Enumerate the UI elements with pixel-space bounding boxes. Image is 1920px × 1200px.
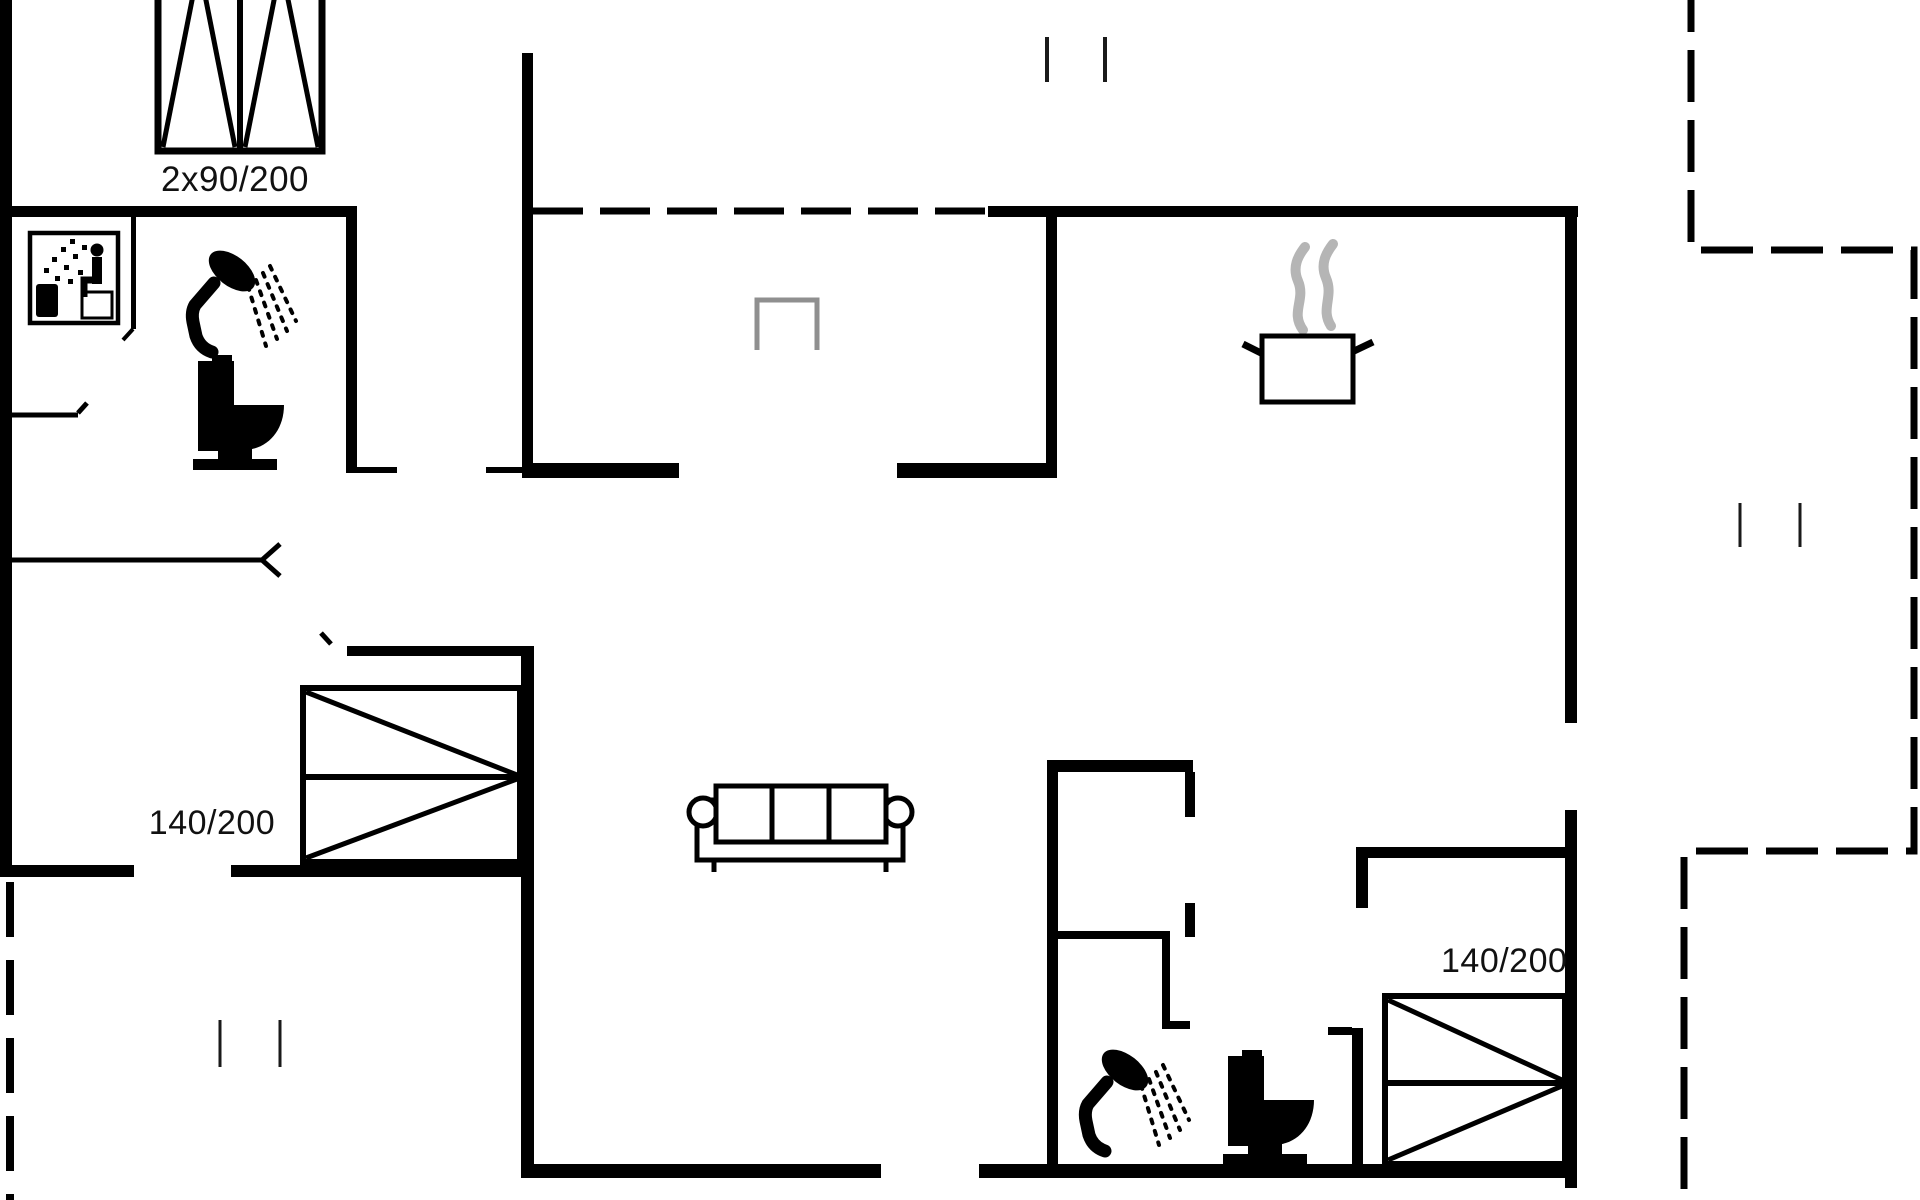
bedroom2-top-wall: [347, 646, 534, 656]
double-bed-2x90-icon: [158, 0, 322, 151]
hall-left-wall: [522, 53, 533, 478]
bedroom2-bottom-wall-left: [0, 865, 134, 877]
right-outer-wall-upper: [1565, 206, 1577, 723]
right-terrace-dashed: [1684, 0, 1914, 1200]
corridor-door-chevron: [262, 544, 280, 576]
steam-wisp: [1296, 247, 1305, 330]
steam-wisp: [1324, 244, 1333, 326]
kitchen-top-outer-wall: [988, 206, 1578, 217]
double-bed-140x200-right-icon: [1385, 996, 1565, 1164]
toilet-icon: [193, 355, 284, 470]
hall-bottom-wall-left: [522, 463, 679, 478]
bathroom2-left-wall: [1047, 760, 1058, 1178]
sofa-icon: [689, 786, 912, 872]
bathroom1-door-stub: [346, 467, 397, 473]
bathroom2-shower-partition: [1057, 931, 1170, 939]
sauna-pictogram-icon: [30, 233, 118, 323]
shower-icon: [1085, 1042, 1189, 1151]
bed-size-label-right: 140/200: [1441, 944, 1567, 978]
bathroom2-door-jamb-upper: [1185, 772, 1195, 817]
bathroom1-door-hook: [78, 403, 87, 413]
bathroom2-partition-foot: [1162, 1021, 1190, 1029]
sauna-partition-hook: [123, 329, 133, 340]
bathroom2-door-jamb-lower: [1185, 903, 1195, 937]
bedroom3-left-wall: [1352, 1028, 1363, 1178]
pot-body: [1262, 336, 1353, 402]
hall-door-stub: [486, 467, 522, 473]
bed-size-label-top: 2x90/200: [147, 162, 323, 197]
bathroom1-right-wall: [346, 206, 357, 473]
double-bed-140x200-left-icon: [303, 688, 520, 862]
bottom-outer-wall-left: [521, 1164, 881, 1178]
kitchen-left-wall: [1046, 206, 1057, 478]
hall-bottom-wall-right: [897, 463, 1057, 478]
sauna-partition: [131, 217, 136, 329]
bed-size-label-left: 140/200: [131, 806, 293, 840]
thin-partitions: [131, 217, 1190, 1029]
bedroom3-door-tick: [1328, 1027, 1352, 1035]
left-outer-wall: [0, 0, 12, 872]
toilet-icon: [1223, 1050, 1314, 1165]
bathroom1-top-wall: [0, 206, 357, 217]
bathroom2-top-wall: [1047, 760, 1193, 772]
bathroom2-shower-partition-return: [1162, 939, 1170, 1024]
shower-icon: [192, 243, 296, 352]
bedroom3-top-wall: [1357, 847, 1577, 858]
window-tick-marks: [220, 37, 1800, 1067]
door-marks: [12, 329, 331, 644]
bedroom3-door-jamb: [1356, 847, 1368, 908]
entry-marker-icon: [757, 300, 817, 350]
cooking-pot-steam-icon: [1243, 244, 1373, 402]
bedroom2-door-hook: [321, 633, 331, 644]
floorplan-canvas: 2x90/200 140/200 140/200: [0, 0, 1920, 1200]
bedroom2-bottom-wall-right: [231, 865, 534, 877]
